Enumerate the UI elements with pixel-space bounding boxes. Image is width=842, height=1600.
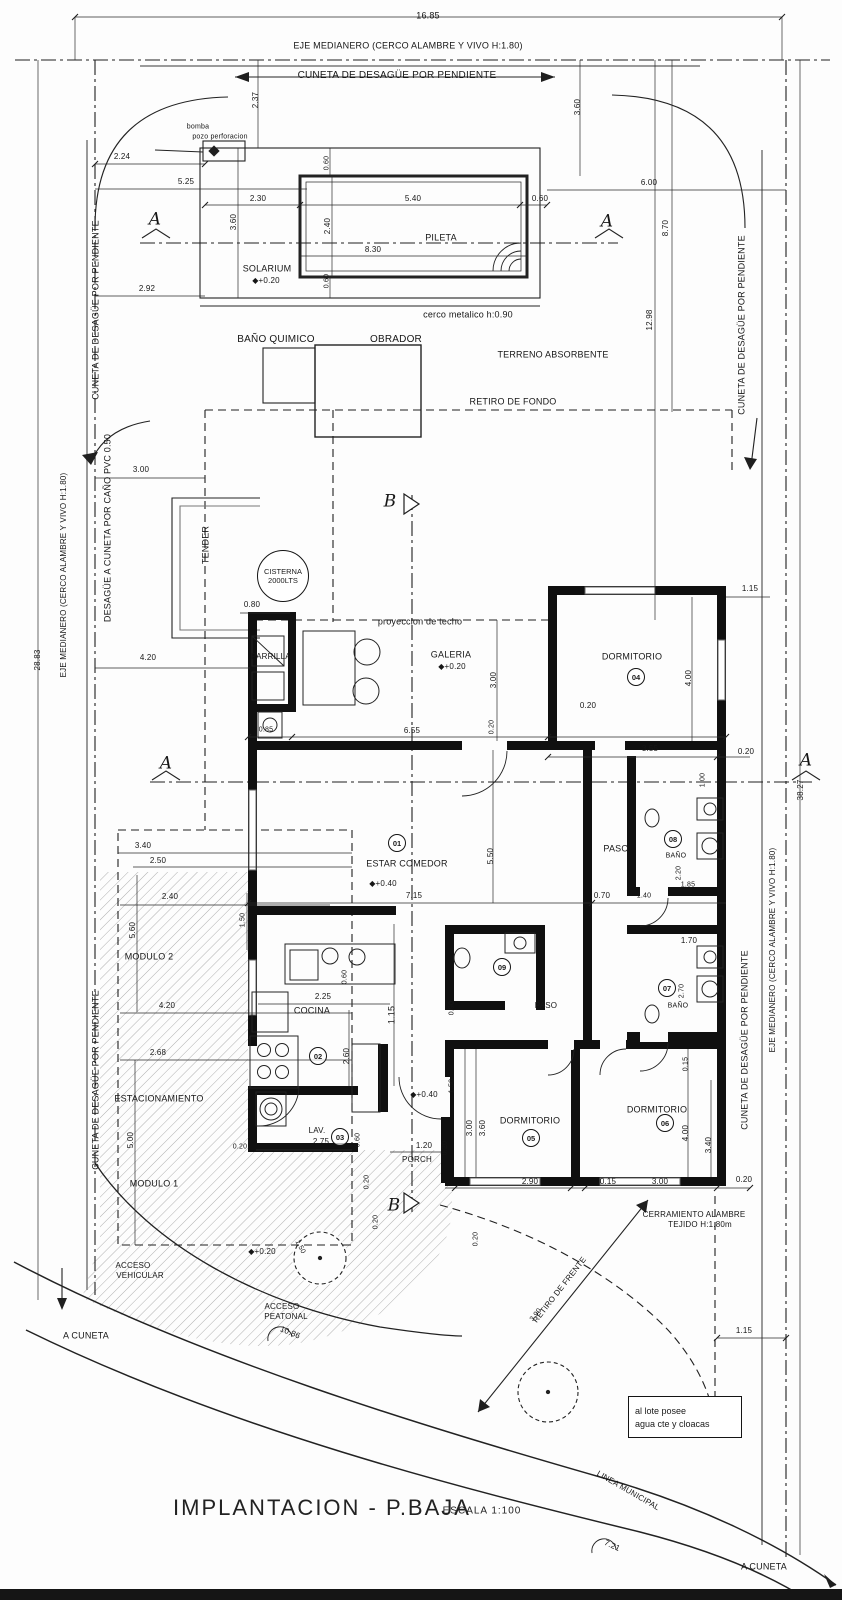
plan-label: ESTAR COMEDOR bbox=[366, 860, 447, 869]
plan-label: 5.40 bbox=[405, 195, 421, 203]
room-number: 08 bbox=[664, 830, 682, 848]
room-number: 02 bbox=[309, 1047, 327, 1065]
plan-label: TERRENO ABSORBENTE bbox=[497, 351, 608, 360]
room-number: 03 bbox=[331, 1128, 349, 1146]
room-number: 06 bbox=[656, 1114, 674, 1132]
plan-label: 2.75 bbox=[313, 1138, 329, 1146]
plan-label: OBRADOR bbox=[370, 335, 422, 345]
plan-label: 0.60 bbox=[324, 156, 331, 170]
plan-label: 1.50 bbox=[240, 913, 247, 927]
plan-label: 0.85 bbox=[259, 727, 273, 734]
plan-label: 5.50 bbox=[487, 848, 495, 864]
plan-label: EJE MEDIANERO (CERCO ALAMBRE Y VIVO H:1.… bbox=[769, 848, 777, 1053]
plan-label: TEJIDO H:1.80m bbox=[668, 1221, 732, 1229]
plan-label: 2.20 bbox=[676, 866, 683, 880]
plan-label: MODULO 1 bbox=[130, 1180, 179, 1189]
plan-label: 16.85 bbox=[416, 12, 440, 21]
plan-label: 2.40 bbox=[162, 893, 178, 901]
plan-label: 0.90 bbox=[449, 1001, 456, 1015]
scan-footer-bar bbox=[0, 1589, 842, 1600]
plan-label: GALERIA bbox=[431, 651, 471, 660]
plan-label: 0.60 bbox=[342, 970, 349, 984]
plan-label: CERRAMIENTO ALAMBRE bbox=[643, 1211, 746, 1219]
plan-label: DORMITORIO bbox=[627, 1106, 687, 1115]
plan-label: ACCESO bbox=[116, 1262, 151, 1270]
plan-label: CUNETA DE DESAGÜE POR PENDIENTE bbox=[298, 71, 497, 81]
plan-label: EJE MEDIANERO (CERCO ALAMBRE Y VIVO H:1.… bbox=[60, 473, 68, 678]
plan-label: DORMITORIO bbox=[500, 1117, 560, 1126]
plan-label: PASO bbox=[535, 1002, 557, 1010]
plan-label: 1.40 bbox=[637, 893, 651, 900]
plan-label: ◆+0.20 bbox=[252, 277, 280, 285]
plan-label: LAV. bbox=[309, 1127, 326, 1135]
plan-label: DORMITORIO bbox=[602, 653, 662, 662]
plan-label: 3.60 bbox=[479, 1120, 487, 1136]
room-number: 05 bbox=[522, 1129, 540, 1147]
services-note-line2: agua cte y cloacas bbox=[635, 1419, 710, 1429]
plan-label: 0.20 bbox=[364, 1175, 371, 1189]
plan-label: 4.20 bbox=[140, 654, 156, 662]
plan-label: proyeccion de techo bbox=[378, 618, 462, 627]
services-note-line1: al lote posee bbox=[635, 1406, 686, 1416]
plan-label: 0.20 bbox=[736, 1176, 752, 1184]
plan-label: 6.00 bbox=[641, 179, 657, 187]
plan-label: MODULO 2 bbox=[125, 953, 174, 962]
plan-label: 4.20 bbox=[159, 1002, 175, 1010]
plan-label: 38.27 bbox=[797, 779, 805, 800]
plan-label: 1.50 bbox=[449, 1079, 456, 1093]
plan-label: 12.98 bbox=[646, 309, 654, 330]
plan-label: 1.70 bbox=[681, 937, 697, 945]
plan-label: cerco metalico h:0.90 bbox=[423, 311, 513, 320]
cisterna-line1: CISTERNA bbox=[264, 567, 302, 576]
plan-label: 0.70 bbox=[594, 892, 610, 900]
services-note: al lote posee agua cte y cloacas bbox=[628, 1396, 742, 1438]
plan-label: 4.00 bbox=[685, 670, 693, 686]
plan-label: A bbox=[800, 753, 812, 770]
room-number: 07 bbox=[658, 979, 676, 997]
plan-label: CUNETA DE DESAGÜE POR PENDIENTE bbox=[92, 990, 101, 1170]
plan-label: A CUNETA bbox=[63, 1332, 109, 1341]
cisterna-label: CISTERNA 2000LTS bbox=[257, 550, 309, 602]
plan-label: VEHICULAR bbox=[116, 1272, 164, 1280]
plan-label: PORCH bbox=[402, 1156, 432, 1164]
plan-label: B bbox=[388, 1198, 401, 1215]
plan-label: 2.24 bbox=[114, 153, 130, 161]
plan-label: B bbox=[384, 494, 397, 511]
plan-label: BAÑO QUIMICO bbox=[237, 335, 314, 345]
plan-label: 0.20 bbox=[580, 702, 596, 710]
lot-boundary bbox=[15, 60, 830, 1560]
plan-label: DESAGÜE A CUNETA POR CAÑO PVC 0.50 bbox=[104, 434, 113, 622]
plan-label: ◆+0.40 bbox=[369, 880, 397, 888]
plan-label: 2.25 bbox=[315, 993, 331, 1001]
plan-label: 3.60 bbox=[230, 214, 238, 230]
plan-label: 6.55 bbox=[404, 727, 420, 735]
plan-label: 1.15 bbox=[736, 1327, 752, 1335]
plan-label: A CUNETA bbox=[741, 1563, 787, 1572]
plan-label: 3.40 bbox=[135, 842, 151, 850]
plan-label: 5.60 bbox=[129, 922, 137, 938]
plan-label: A bbox=[149, 212, 161, 229]
plan-label: 1.85 bbox=[681, 882, 695, 889]
plan-label: 3.55 bbox=[642, 745, 658, 753]
plan-label: CUNETA DE DESAGÜE POR PENDIENTE bbox=[738, 235, 747, 415]
plan-label: 0.20 bbox=[738, 748, 754, 756]
plan-label: bomba bbox=[187, 124, 209, 131]
room-number: 04 bbox=[627, 668, 645, 686]
plan-label: 0.20 bbox=[373, 1215, 380, 1229]
plan-label: PASO bbox=[603, 845, 628, 854]
plan-label: 7.15 bbox=[406, 892, 422, 900]
drawing-title: IMPLANTACION - P.BAJA bbox=[173, 1495, 471, 1521]
plan-label: 1.00 bbox=[700, 773, 707, 787]
plan-label: 5.00 bbox=[127, 1132, 135, 1148]
plan-label: 0.80 bbox=[244, 601, 260, 609]
drawing-scale: ESCALA 1:100 bbox=[443, 1506, 522, 1517]
plan-label: 1.15 bbox=[742, 585, 758, 593]
plan-label: BAÑO bbox=[668, 1003, 689, 1010]
plan-label: 0.60 bbox=[532, 195, 548, 203]
plan-label: 2.68 bbox=[150, 1049, 166, 1057]
cisterna-line2: 2000LTS bbox=[268, 576, 298, 585]
plan-label: 0.20 bbox=[489, 720, 496, 734]
plan-label: 0.20 bbox=[233, 1144, 247, 1151]
plan-label: 3.00 bbox=[133, 466, 149, 474]
plan-label: 3.00 bbox=[652, 1178, 668, 1186]
plan-label: 2.70 bbox=[679, 984, 686, 998]
plan-label: A bbox=[601, 214, 613, 231]
plan-label: 3.40 bbox=[705, 1137, 713, 1153]
plan-label: 2.30 bbox=[250, 195, 266, 203]
plan-label: 1.20 bbox=[416, 1142, 432, 1150]
plan-label: SOLARIUM bbox=[243, 265, 292, 274]
plan-label: 2.92 bbox=[139, 285, 155, 293]
plan-label: 28.83 bbox=[34, 649, 42, 670]
plan-label: 0.60 bbox=[355, 1133, 362, 1147]
plan-label: ESTACIONAMIENTO bbox=[114, 1095, 203, 1104]
plan-label: 0.20 bbox=[442, 1141, 449, 1155]
plan-linework bbox=[0, 0, 842, 1600]
plan-label: pozo perforacion bbox=[192, 134, 247, 141]
plan-label: PARRILLA bbox=[251, 653, 291, 661]
plan-label: 2.37 bbox=[252, 92, 260, 108]
plan-label: EJE MEDIANERO (CERCO ALAMBRE Y VIVO H:1.… bbox=[293, 42, 522, 51]
plan-label: 3.60 bbox=[574, 99, 582, 115]
plan-label: CUNETA DE DESAGÜE POR PENDIENTE bbox=[92, 220, 101, 400]
plan-label: CUNETA DE DESAGÜE POR PENDIENTE bbox=[741, 950, 750, 1130]
plan-label: BAÑO bbox=[666, 853, 687, 860]
site-plan-canvas: 16.85EJE MEDIANERO (CERCO ALAMBRE Y VIVO… bbox=[0, 0, 842, 1600]
plan-label: 0.60 bbox=[324, 274, 331, 288]
plan-label: 8.70 bbox=[662, 220, 670, 236]
room-number: 09 bbox=[493, 958, 511, 976]
plan-label: 2.40 bbox=[324, 218, 332, 234]
plan-label: 1.15 bbox=[388, 1006, 397, 1024]
plan-label: 0.15 bbox=[600, 1178, 616, 1186]
plan-label: 3.00 bbox=[490, 672, 498, 688]
plan-label: ◆+0.40 bbox=[410, 1091, 438, 1099]
plan-label: 4.00 bbox=[682, 1125, 690, 1141]
plan-label: ACCESO bbox=[265, 1303, 300, 1311]
plan-label: PEATONAL bbox=[264, 1313, 308, 1321]
plan-label: 8.30 bbox=[365, 246, 381, 254]
door-arcs bbox=[259, 751, 668, 1126]
plan-label: COCINA bbox=[294, 1007, 330, 1016]
plan-label: RETIRO DE FONDO bbox=[469, 398, 556, 407]
plan-label: 3.00 bbox=[466, 1120, 474, 1136]
room-number: 01 bbox=[388, 834, 406, 852]
plan-label: 2.90 bbox=[522, 1178, 538, 1186]
plan-label: 2.50 bbox=[150, 857, 166, 865]
plan-label: PILETA bbox=[425, 234, 457, 243]
plan-label: A bbox=[160, 756, 172, 773]
plan-label: 0.15 bbox=[683, 1057, 690, 1071]
plan-label: 2.60 bbox=[343, 1048, 351, 1064]
plan-label: 5.25 bbox=[178, 178, 194, 186]
plan-label: 0.20 bbox=[473, 1232, 480, 1246]
plan-label: TENDER bbox=[202, 526, 211, 564]
plan-label: ◆+0.20 bbox=[438, 663, 466, 671]
plan-label: ◆+0.20 bbox=[248, 1248, 276, 1256]
